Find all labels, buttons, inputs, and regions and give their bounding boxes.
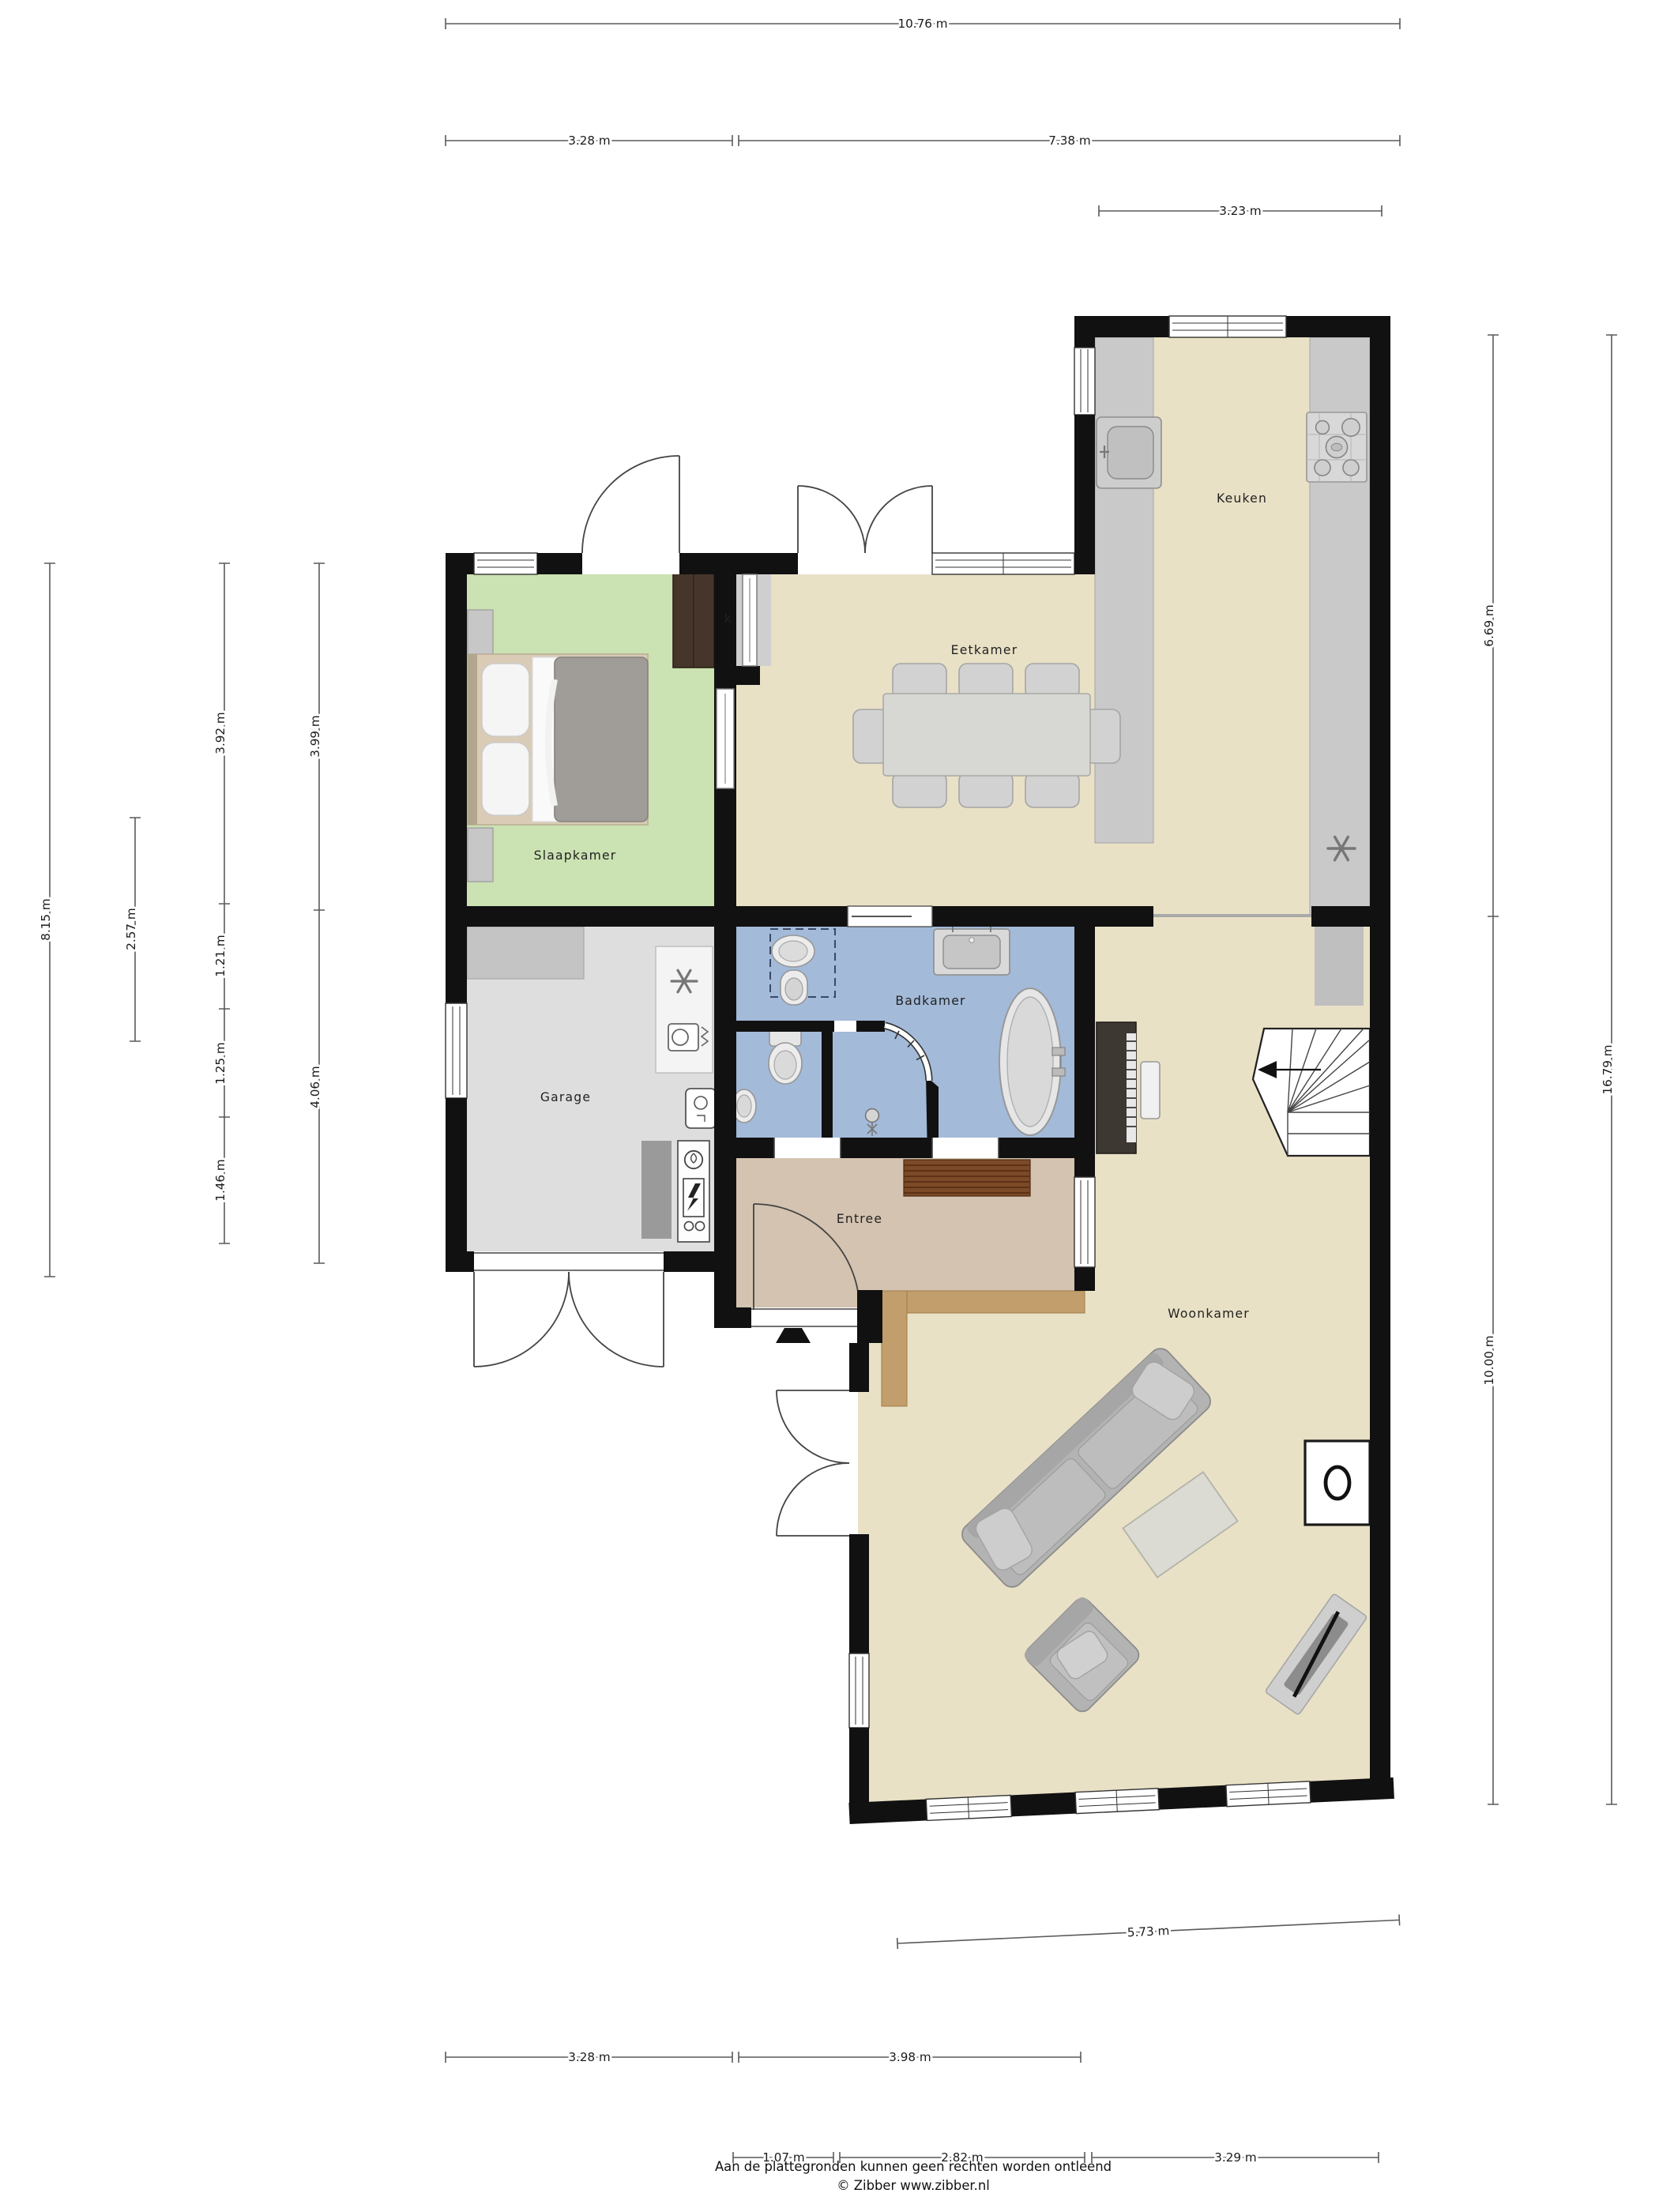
door-opening <box>774 1138 841 1158</box>
svg-text:10.00 m: 10.00 m <box>1482 1335 1496 1385</box>
dining-chair <box>1025 773 1079 807</box>
window <box>1074 1177 1095 1267</box>
floors <box>446 316 1390 1817</box>
window <box>932 553 1074 574</box>
room-label-eetkamer: Eetkamer <box>951 643 1018 657</box>
svg-text:6.69 m: 6.69 m <box>1482 604 1496 646</box>
dim-top-total: 10.76 m <box>446 17 1400 31</box>
french-doors <box>777 1390 869 1536</box>
dim-right-top: 6.69 m <box>1482 335 1499 916</box>
svg-text:2.57 m: 2.57 m <box>124 908 138 950</box>
boiler-icon <box>686 1089 716 1128</box>
wc-door <box>834 1021 856 1032</box>
svg-text:3.28 m: 3.28 m <box>568 2050 610 2064</box>
svg-text:7.38 m: 7.38 m <box>1048 134 1090 148</box>
room-label-slaapkamer: Slaapkamer <box>534 848 617 863</box>
dim-left-a: 3.92 m <box>213 563 230 904</box>
window <box>849 1653 869 1728</box>
floorplan-svg: Keuken Eetkamer Slaapkamer Garage Badkam… <box>0 0 1659 2212</box>
bath-tap <box>1052 1048 1065 1055</box>
dim-left-b: 1.21 m <box>213 904 230 1009</box>
stove-hob <box>1307 412 1367 482</box>
svg-text:8.15 m: 8.15 m <box>39 898 53 940</box>
svg-text:3.23 m: 3.23 m <box>1219 204 1261 218</box>
dim-top-kitchen: 3.23 m <box>1099 204 1382 218</box>
floor-mat <box>641 1141 671 1239</box>
piano-bench <box>1141 1062 1160 1119</box>
svg-text:3.92 m: 3.92 m <box>213 712 228 754</box>
room-label-badkamer: Badkamer <box>895 994 965 1008</box>
toilet <box>772 935 814 967</box>
dining-chair <box>959 773 1013 807</box>
appliance-niche <box>656 946 713 1073</box>
svg-text:10.76 m: 10.76 m <box>897 17 947 31</box>
svg-text:16.79 m: 16.79 m <box>1601 1044 1615 1094</box>
kitchen-sink <box>1097 417 1161 488</box>
window <box>926 1795 1011 1820</box>
dim-bottom-left: 3.28 m <box>446 2050 732 2064</box>
closet-door <box>743 574 757 666</box>
dim-top-right: 7.38 m <box>739 134 1400 148</box>
nightstand <box>468 828 493 882</box>
garage-doors <box>474 1251 664 1367</box>
window <box>474 553 537 574</box>
door-opening <box>932 1138 999 1158</box>
dim-right-total: 16.79 m <box>1601 335 1617 1804</box>
svg-text:3.99 m: 3.99 m <box>308 715 322 757</box>
wc-toilet <box>769 1029 802 1084</box>
dim-left-d: 1.46 m <box>213 1117 230 1243</box>
svg-text:4.06 m: 4.06 m <box>308 1066 322 1108</box>
dim-left-mid: 2.57 m <box>124 818 141 1041</box>
window <box>1169 316 1286 337</box>
wood-threshold-h <box>907 1291 1085 1313</box>
footer-copyright: © Zibber www.zibber.nl <box>837 2178 990 2193</box>
window <box>1226 1781 1311 1807</box>
double-door-opening <box>798 486 932 574</box>
dining-table <box>883 694 1090 776</box>
floorplan-page: Keuken Eetkamer Slaapkamer Garage Badkam… <box>0 0 1659 2212</box>
dim-left-f: 4.06 m <box>308 910 325 1263</box>
double-bed <box>468 654 648 825</box>
svg-text:1.21 m: 1.21 m <box>213 935 228 976</box>
dim-top-left: 3.28 m <box>446 134 732 148</box>
window <box>1075 1789 1159 1814</box>
room-label-garage: Garage <box>540 1090 591 1104</box>
dim-bottom-mid: 3.98 m <box>739 2050 1081 2064</box>
fireplace <box>1305 1441 1370 1525</box>
dim-bottom-living: 5.73 m <box>897 1913 1400 1951</box>
room-label-woonkamer: Woonkamer <box>1168 1307 1250 1321</box>
svg-text:1.25 m: 1.25 m <box>213 1042 228 1084</box>
svg-text:3.98 m: 3.98 m <box>889 2050 931 2064</box>
chimney-block <box>1315 927 1364 1006</box>
room-keuken-eetkamer-floor <box>733 316 1390 927</box>
window <box>1074 348 1095 415</box>
room-label-entree: Entree <box>837 1212 882 1226</box>
dining-chair <box>893 773 946 807</box>
svg-text:1.46 m: 1.46 m <box>213 1159 228 1201</box>
door-opening <box>582 456 679 574</box>
dim-left-total: 8.15 m <box>39 563 55 1277</box>
bidet <box>781 970 807 1005</box>
dim-left-c: 1.25 m <box>213 1009 230 1117</box>
door-mat <box>904 1160 1030 1196</box>
meter-cupboard <box>678 1141 709 1242</box>
interior-door <box>717 689 734 788</box>
room-label-closet: k <box>724 611 732 626</box>
svg-text:3.29 m: 3.29 m <box>1214 2150 1256 2165</box>
footer: Aan de plattegronden kunnen geen rechten… <box>715 2159 1112 2193</box>
svg-text:5.73 m: 5.73 m <box>1127 1924 1170 1939</box>
dim-right-bottom: 10.00 m <box>1482 916 1499 1804</box>
garage-worktop <box>467 927 584 979</box>
svg-text:3.28 m: 3.28 m <box>568 134 610 148</box>
dim-left-e: 3.99 m <box>308 563 325 910</box>
room-label-keuken: Keuken <box>1217 491 1267 506</box>
kitchen-counter-left <box>1095 337 1153 843</box>
wood-threshold-v <box>882 1291 907 1406</box>
window <box>446 1003 467 1098</box>
footer-disclaimer: Aan de plattegronden kunnen geen rechten… <box>715 2159 1112 2174</box>
bathroom-door <box>848 906 932 927</box>
dim-bottom-e3: 3.29 m <box>1092 2150 1379 2165</box>
bath-tap <box>1052 1068 1065 1076</box>
